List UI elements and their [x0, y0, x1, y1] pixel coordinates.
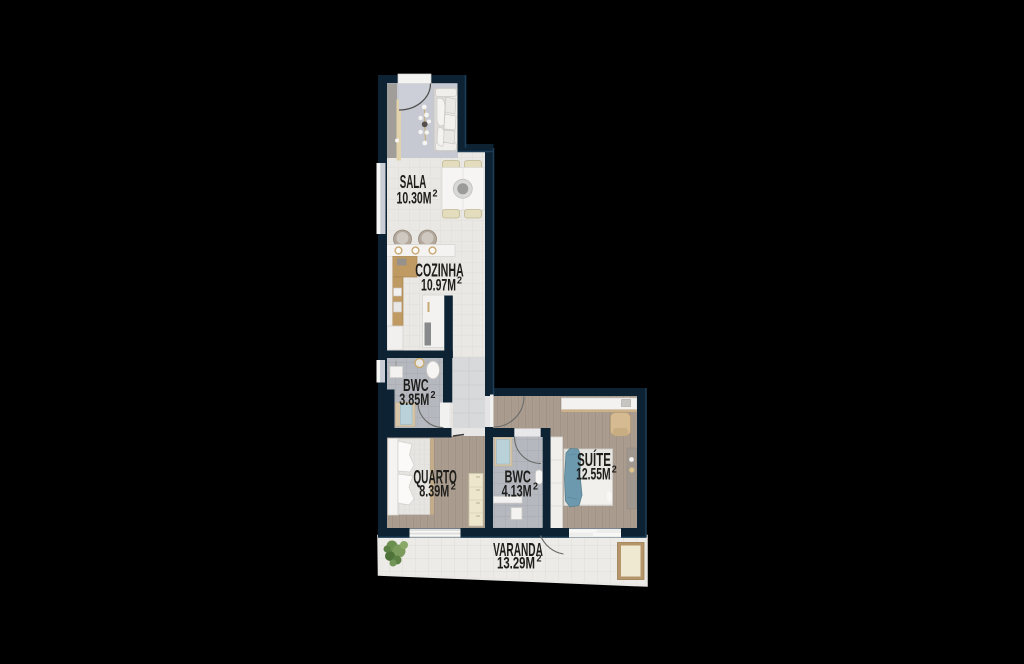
svg-text:2: 2 [451, 481, 456, 492]
svg-text:2: 2 [533, 481, 538, 492]
svg-text:10.30M: 10.30M [397, 188, 432, 207]
svg-text:2: 2 [537, 554, 542, 565]
svg-text:8.39M: 8.39M [419, 481, 449, 500]
svg-text:13.29M: 13.29M [497, 553, 535, 572]
svg-text:2: 2 [431, 390, 436, 401]
svg-text:12.55M: 12.55M [576, 464, 611, 483]
svg-text:2: 2 [433, 189, 438, 200]
svg-text:2: 2 [612, 465, 617, 476]
svg-text:4.13M: 4.13M [502, 482, 532, 500]
svg-text:3.85M: 3.85M [399, 391, 429, 409]
svg-text:2: 2 [457, 276, 462, 287]
svg-text:10.97M: 10.97M [421, 275, 456, 294]
